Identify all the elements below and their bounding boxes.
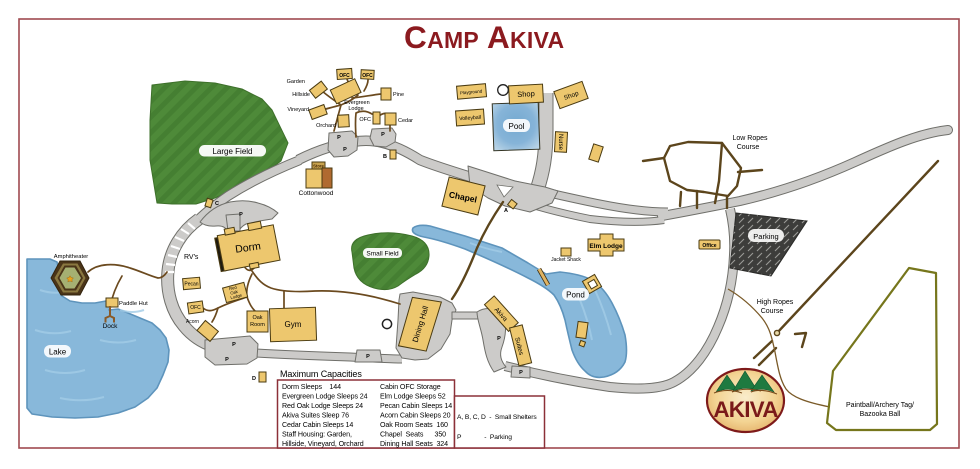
svg-text:Dock: Dock xyxy=(103,323,119,330)
svg-text:B: B xyxy=(383,154,387,160)
svg-text:A: A xyxy=(504,208,508,214)
svg-text:Red Oak Lodge Sleeps 24: Red Oak Lodge Sleeps 24 xyxy=(282,402,363,410)
svg-text:P: P xyxy=(381,132,385,138)
svg-text:Hillside: Hillside xyxy=(292,92,310,98)
svg-text:Large Field: Large Field xyxy=(212,147,252,156)
svg-text:Course: Course xyxy=(737,144,760,151)
svg-text:Amphitheater: Amphitheater xyxy=(54,254,89,260)
svg-text:Pine: Pine xyxy=(393,92,404,98)
svg-text:Hillside, Vineyard, Orchard: Hillside, Vineyard, Orchard xyxy=(282,440,364,448)
svg-text:Pecan: Pecan xyxy=(184,282,198,288)
svg-text:Chapel Seats 350: Chapel Seats 350 xyxy=(380,431,446,439)
svg-text:A, B, C, D - Small Shelters: A, B, C, D - Small Shelters xyxy=(457,414,537,421)
svg-text:OFC: OFC xyxy=(359,117,371,123)
svg-text:Dining Hall Seats 324: Dining Hall Seats 324 xyxy=(380,440,448,448)
svg-text:OFC: OFC xyxy=(339,73,350,79)
svg-text:Pond: Pond xyxy=(566,291,585,300)
svg-text:Vineyard: Vineyard xyxy=(287,107,309,113)
svg-text:Evergreen Lodge Sleeps 24: Evergreen Lodge Sleeps 24 xyxy=(282,393,368,401)
svg-text:Cedar: Cedar xyxy=(398,118,413,124)
svg-text:OFC: OFC xyxy=(362,73,373,79)
svg-text:Cabin OFC Storage: Cabin OFC Storage xyxy=(380,383,441,391)
svg-text:P: P xyxy=(497,336,501,342)
svg-text:P: P xyxy=(366,354,370,360)
svg-text:Nurse: Nurse xyxy=(557,134,563,151)
svg-text:Low Ropes: Low Ropes xyxy=(732,135,768,142)
svg-text:P: P xyxy=(239,212,243,218)
svg-text:Room: Room xyxy=(250,322,265,328)
svg-text:Cottonwood: Cottonwood xyxy=(299,190,334,197)
svg-text:Cedar Cabin Sleeps 14: Cedar Cabin Sleeps 14 xyxy=(282,421,353,429)
svg-text:Small Field: Small Field xyxy=(366,251,399,258)
svg-text:P: P xyxy=(519,370,523,376)
svg-text:P: P xyxy=(337,135,341,141)
svg-text:Akiva Suites Sleep 76: Akiva Suites Sleep 76 xyxy=(282,412,349,420)
svg-text:Paddle Hut: Paddle Hut xyxy=(119,301,148,307)
svg-text:P: P xyxy=(343,147,347,153)
svg-text:Paintball/Archery Tag/: Paintball/Archery Tag/ xyxy=(846,402,914,409)
svg-text:Orchard: Orchard xyxy=(316,123,336,129)
svg-text:OFC: OFC xyxy=(190,305,201,311)
svg-text:Acorn Cabin Sleeps 20: Acorn Cabin Sleeps 20 xyxy=(380,412,451,420)
svg-text:D: D xyxy=(252,376,256,382)
svg-text:Acorn: Acorn xyxy=(186,319,199,325)
svg-text:Store: Store xyxy=(313,164,324,169)
svg-text:C: C xyxy=(215,201,219,207)
svg-text:Bazooka Ball: Bazooka Ball xyxy=(860,411,901,418)
svg-text:Maximum Capacities: Maximum Capacities xyxy=(280,369,362,379)
svg-text:Oak Room Seats 160: Oak Room Seats 160 xyxy=(380,421,448,429)
svg-text:Pecan Cabin Sleeps 14: Pecan Cabin Sleeps 14 xyxy=(380,402,452,410)
svg-text:Elm Lodge: Elm Lodge xyxy=(589,243,623,250)
svg-text:Office: Office xyxy=(702,243,716,249)
svg-text:Course: Course xyxy=(761,308,784,315)
svg-text:Pool: Pool xyxy=(508,122,524,131)
svg-text:Lake: Lake xyxy=(49,348,67,357)
svg-text:Elm Lodge Sleeps 52: Elm Lodge Sleeps 52 xyxy=(380,393,446,401)
svg-text:P: P xyxy=(232,342,236,348)
svg-text:Jacket Shack: Jacket Shack xyxy=(551,257,581,263)
svg-text:Shop: Shop xyxy=(517,89,535,99)
svg-text:Staff Housing: Garden,: Staff Housing: Garden, xyxy=(282,431,352,439)
svg-text:High Ropes: High Ropes xyxy=(757,299,794,306)
svg-text:P - Parking: P - Parking xyxy=(457,434,512,441)
svg-text:Gym: Gym xyxy=(285,320,302,329)
svg-text:Parking: Parking xyxy=(753,232,778,241)
svg-text:AKIVA: AKIVA xyxy=(713,397,778,422)
svg-text:Oak: Oak xyxy=(252,315,262,321)
svg-text:Lodge: Lodge xyxy=(348,106,363,112)
svg-text:P: P xyxy=(225,357,229,363)
svg-text:RV's: RV's xyxy=(184,254,199,261)
svg-text:Dorm Sleeps 144: Dorm Sleeps 144 xyxy=(282,383,341,391)
svg-text:Garden: Garden xyxy=(287,79,305,85)
